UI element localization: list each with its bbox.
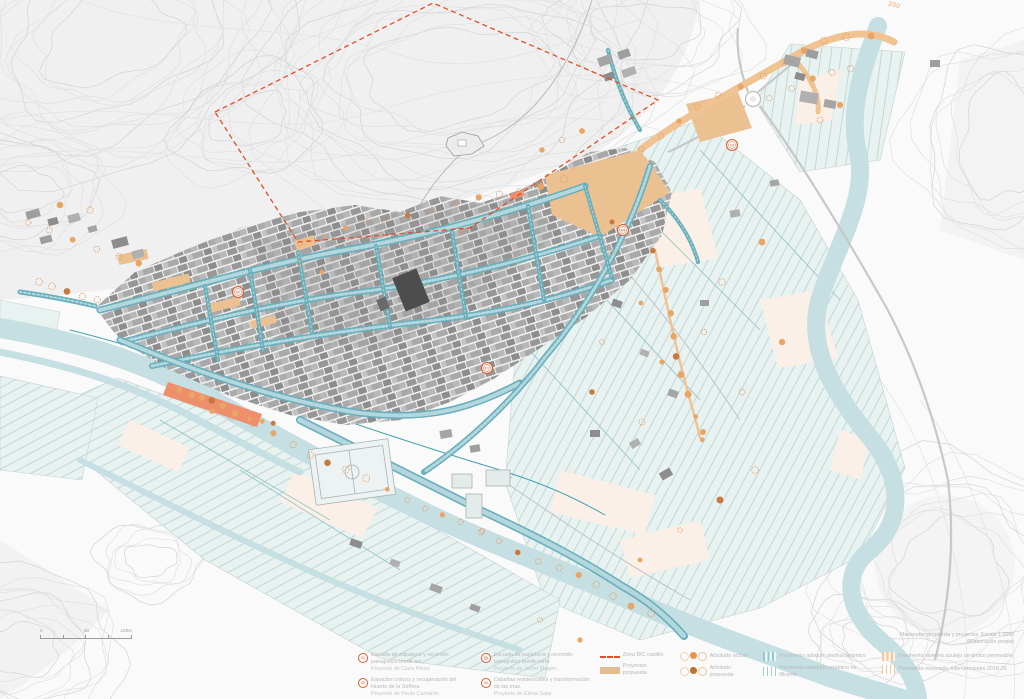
caption-line-1: Masterplan propuesta y proyectos. Escala… [784,632,1014,639]
project-marker-02: 02 [233,287,244,298]
legend-project-01: 01 Escuela de zapatería y recorrido pais… [358,652,472,673]
bic-dash-swatch-icon [600,656,620,658]
legend-label: Proyectos propuesta [623,663,671,677]
pavement-swatch-icon [882,652,895,661]
map-legend: 01 Escuela de zapatería y recorrido pais… [358,652,1022,698]
legend-pav-renovado: Pavimento renovado, intervenciones 2018-… [882,665,1022,674]
legend-project-03: 03 Escuela de pastelería y recorrido pai… [481,652,591,673]
numbered-marker-icon: 02 [358,678,368,688]
numbered-marker-icon: 03 [481,653,491,663]
legend-arbolado-propuesta: Arbolado propuesta [680,665,755,679]
pavement-swatch-icon [763,652,776,661]
scale-tick-label: 0 [40,628,43,633]
legend-label: Pavimento renovado, intervenciones 2018-… [898,666,1006,673]
legend-pavement-blue-col: Pavimento adoquín piedra/cerámico Pavime… [763,652,873,679]
scale-bar-line [40,634,132,639]
map-caption: Masterplan propuesta y proyectos. Escala… [784,632,1014,646]
tree-icons [680,667,707,676]
project-marker-04: 04 [618,225,629,236]
scale-tick-label: 100m [121,628,133,633]
legend-pav-piedra: Pavimento adoquín piedra/cerámico [763,652,873,661]
legend-label: Pavimento adoquín cerámico no filtrante [779,665,873,679]
legend-project-title: Espacios cívicos y recuperación del Huer… [371,677,456,690]
legend-project-author: Proyecto de Paula Camarón [371,691,472,698]
legend-project-title: Cabañas residenciales y transformación d… [494,677,590,690]
legend-project-title: Escuela de pastelería y recorrido paisaj… [494,652,573,665]
roundabout [746,92,761,107]
scale-bar: 0 50 100m [40,628,132,639]
legend-arbolado-actual: Arbolado actual [680,652,755,661]
legend-label: Pavimento adoquín piedra/cerámico [779,653,865,660]
legend-label: Pavimento sistema azulejo cerámico perme… [898,653,1012,660]
legend-zona-bic: Zona BIC castillo [600,652,671,659]
legend-label: Arbolado actual [710,653,747,660]
legend-project-title: Escuela de zapatería y recorrido paisají… [371,652,449,665]
marker-label: 03 [730,143,734,147]
marker-label: 02 [236,290,240,294]
legend-projects-col-1: 01 Escuela de zapatería y recorrido pais… [358,652,472,698]
legend-trees-col: Arbolado actual Arbolado propuesta [680,652,755,679]
numbered-marker-icon: 01 [358,653,368,663]
pavement-swatch-icon [882,665,895,674]
marker-label: 04 [621,228,625,232]
legend-project-author: Proyecto de Clara Pérez [371,666,472,673]
tan-swatch-icon [600,667,620,674]
map-canvas: 01 02 03 04 [0,0,1024,699]
legend-project-04: 04 Cabañas residenciales y transformació… [481,677,591,698]
scale-tick-label: 50 [84,628,89,633]
caption-line-2: (Elaboración propia) [784,639,1014,646]
numbered-marker-icon: 04 [481,678,491,688]
legend-project-author: Proyecto de Javier Magén [494,666,591,673]
legend-projects-col-2: 03 Escuela de pastelería y recorrido pai… [481,652,591,698]
tree-icons [680,652,707,661]
legend-pavement-orange-col: Pavimento sistema azulejo cerámico perme… [882,652,1022,674]
legend-project-author: Proyecto de Elena Salar [494,691,591,698]
legend-project-02: 02 Espacios cívicos y recuperación del H… [358,677,472,698]
project-marker-01: 01 [482,363,493,374]
legend-pav-ceramico: Pavimento adoquín cerámico no filtrante [763,665,873,679]
pavement-swatch-icon [763,667,776,676]
project-marker-03: 03 [727,140,738,151]
legend-proyectos-propuesta: Proyectos propuesta [600,663,671,677]
marker-label: 01 [485,366,489,370]
legend-label: Zona BIC castillo [623,652,664,659]
masterplan-sheet: 01 02 03 04 01 Escuela de zapatería y re… [0,0,1024,699]
legend-pav-azulejo: Pavimento sistema azulejo cerámico perme… [882,652,1022,661]
legend-label: Arbolado propuesta [710,665,755,679]
legend-zones-col: Zona BIC castillo Proyectos propuesta [600,652,671,677]
